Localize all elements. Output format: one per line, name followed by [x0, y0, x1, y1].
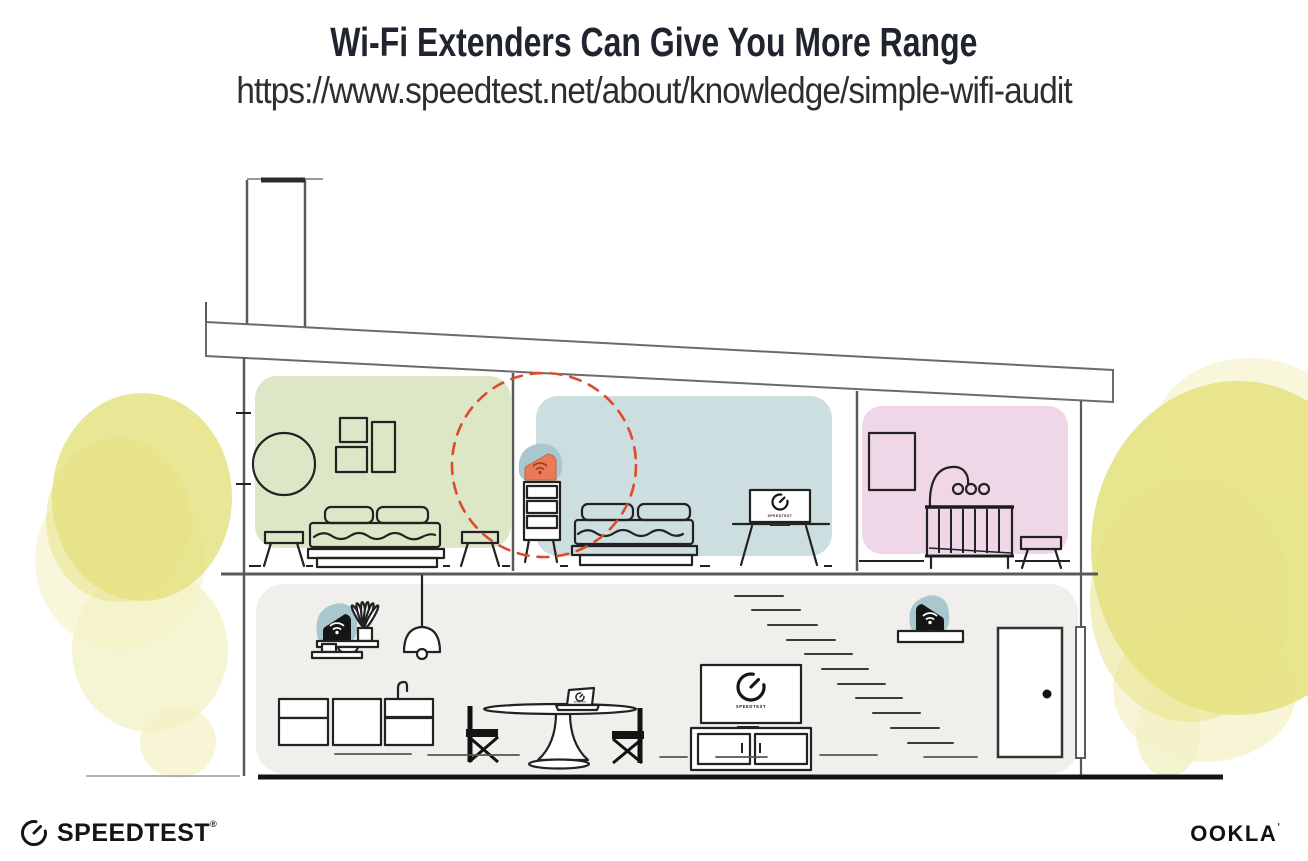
tv-screen-label: SPEEDTEST	[736, 704, 766, 709]
door-knob	[1043, 690, 1052, 699]
chimney	[247, 179, 323, 330]
registered-mark: ®	[210, 819, 217, 829]
watercolor-tree-left	[35, 393, 232, 778]
watercolor-tree-right	[1090, 358, 1308, 777]
table-base	[529, 760, 589, 769]
ookla-trademark-tick: ʼ	[1277, 822, 1280, 833]
cup	[322, 644, 336, 652]
front-door	[998, 628, 1062, 757]
tv-screen-label: SPEEDTEST	[768, 514, 793, 518]
ookla-wordmark: OOKLA	[1190, 821, 1277, 846]
wall-shelf-lower	[312, 652, 362, 658]
speedtest-wordmark: SPEEDTEST	[57, 819, 210, 847]
door-sidelight	[1076, 627, 1085, 758]
speedtest-gauge-icon	[18, 817, 50, 849]
house-cross-section-illustration: SPEEDTEST	[0, 0, 1308, 861]
hall-shelf	[898, 631, 963, 642]
ookla-logo: OOKLAʼ	[1190, 821, 1280, 847]
speedtest-logo: SPEEDTEST®	[18, 817, 217, 849]
nursery-pink-background	[862, 406, 1068, 554]
tv-area-downstairs: SPEEDTEST	[691, 665, 811, 770]
laptop-screen-label: SPEEDTEST	[574, 702, 587, 704]
infographic-page: Wi-Fi Extenders Can Give You More Range …	[0, 0, 1308, 861]
